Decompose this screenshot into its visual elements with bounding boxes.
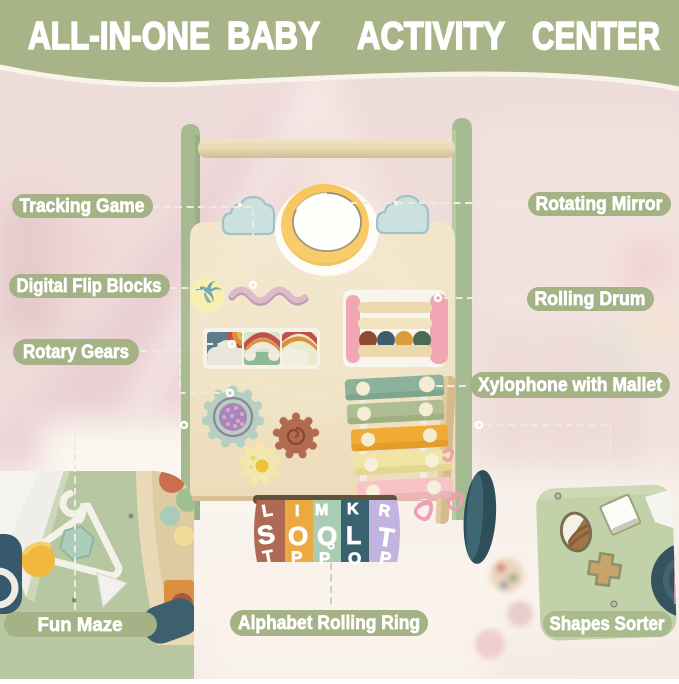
svg-text:I: I	[295, 503, 299, 520]
svg-text:Xylophone with Mallet: Xylophone with Mallet	[478, 375, 663, 396]
svg-text:O: O	[288, 521, 308, 551]
svg-text:CENTER: CENTER	[532, 15, 660, 58]
svg-text:O: O	[348, 549, 361, 568]
svg-text:Tracking Game: Tracking Game	[20, 196, 145, 217]
svg-text:ALL-IN-ONE: ALL-IN-ONE	[28, 15, 210, 58]
svg-text:ACTIVITY: ACTIVITY	[357, 15, 505, 58]
svg-text:Rotary Gears: Rotary Gears	[23, 342, 129, 363]
svg-text:Fun Maze: Fun Maze	[38, 615, 123, 636]
svg-text:Rolling Drum: Rolling Drum	[535, 289, 646, 310]
svg-text:P: P	[319, 549, 330, 568]
svg-text:M: M	[315, 502, 328, 519]
svg-text:K: K	[347, 501, 359, 518]
svg-text:BABY: BABY	[227, 15, 320, 58]
svg-text:Rotating Mirror: Rotating Mirror	[536, 194, 664, 215]
svg-text:Alphabet Rolling Ring: Alphabet Rolling Ring	[238, 613, 420, 634]
svg-text:Shapes Sorter: Shapes Sorter	[550, 614, 666, 635]
svg-text:Digital Flip Blocks: Digital Flip Blocks	[17, 276, 162, 297]
svg-text:L: L	[346, 522, 361, 550]
svg-text:P: P	[291, 548, 302, 567]
